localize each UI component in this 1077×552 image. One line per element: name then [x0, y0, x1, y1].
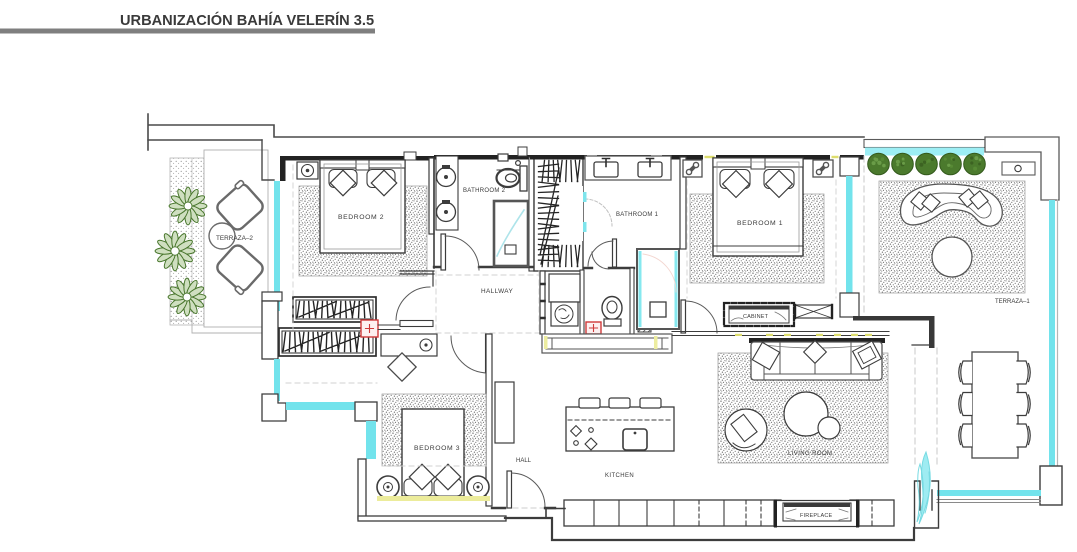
- svg-text:URBANIZACIÓN BAHÍA VELERÍN 3.5: URBANIZACIÓN BAHÍA VELERÍN 3.5: [120, 11, 374, 29]
- svg-text:TERRAZA–1: TERRAZA–1: [995, 299, 1030, 305]
- svg-text:KITCHEN: KITCHEN: [605, 473, 634, 479]
- svg-text:BEDROOM 2: BEDROOM 2: [338, 214, 384, 221]
- svg-text:HALLWAY: HALLWAY: [481, 288, 513, 295]
- svg-text:LIVING ROOM: LIVING ROOM: [788, 451, 832, 457]
- svg-text:BEDROOM 1: BEDROOM 1: [737, 220, 783, 227]
- svg-text:TERRAZA–2: TERRAZA–2: [216, 235, 253, 242]
- svg-text:HALL: HALL: [516, 458, 532, 464]
- svg-text:BATHROOM 1: BATHROOM 1: [616, 212, 659, 218]
- svg-text:BATHROOM 2: BATHROOM 2: [463, 188, 506, 194]
- svg-text:FIREPLACE: FIREPLACE: [800, 513, 832, 519]
- svg-text:CABINET: CABINET: [743, 314, 769, 320]
- svg-text:BEDROOM 3: BEDROOM 3: [414, 445, 460, 452]
